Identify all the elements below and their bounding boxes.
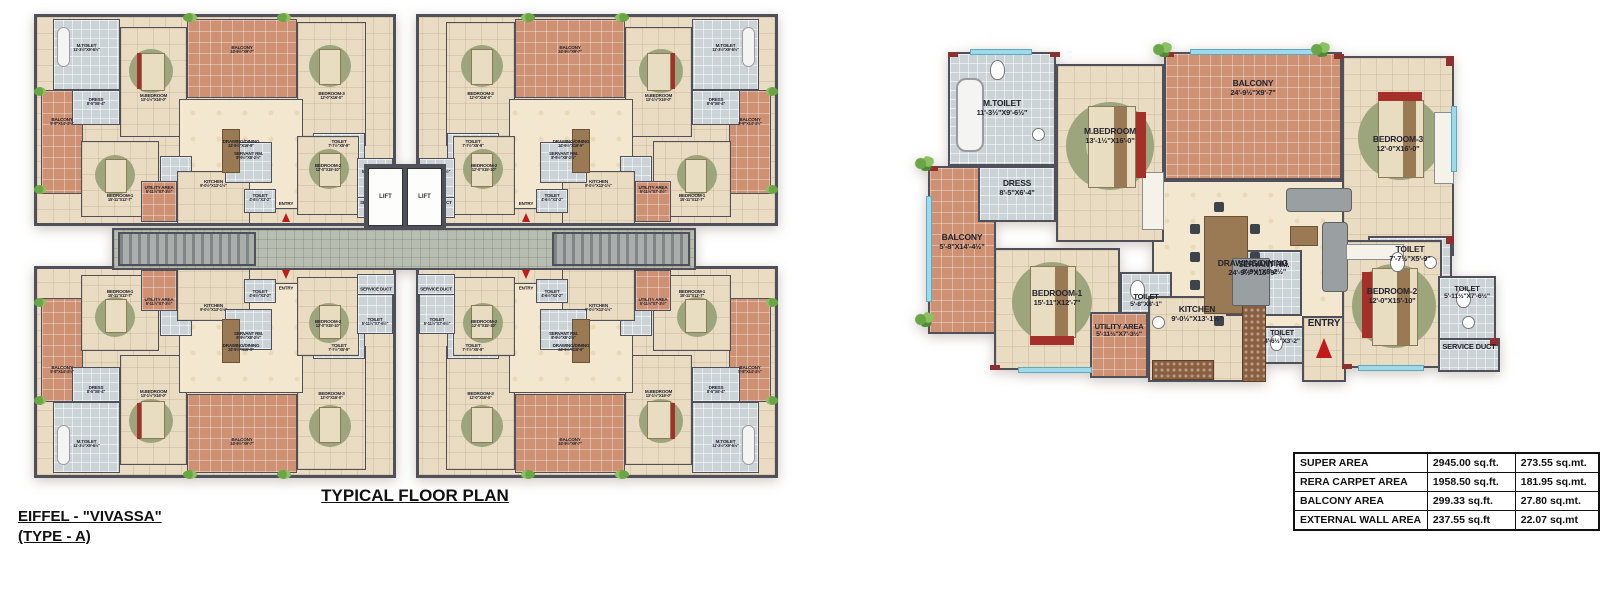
lift-core: LIFT LIFT	[364, 164, 446, 230]
mini-bed-m-bedroom	[141, 53, 165, 91]
label-servant: SERVANT RM.8'-9½"X8'-2½"	[1230, 260, 1298, 278]
project-type: (TYPE - A)	[18, 528, 91, 545]
mini-label-servant: SERVANT RM.8'-9½"X8'-2½"	[540, 331, 587, 341]
room-dims: 5'-8"X14'-4½"	[39, 122, 85, 127]
room-dims: 7'-7½"X5'-9"	[447, 348, 499, 353]
coffee-table	[1290, 226, 1318, 246]
page: LIFT LIFT M.TO	[0, 0, 1600, 600]
room-dims: 24'-9½"X9'-7"	[187, 50, 297, 55]
room-dims: 4'-6½"X3'-2"	[244, 294, 276, 299]
mini-plant-icon	[34, 87, 46, 96]
mini-label-balcony-side: BALCONY5'-8"X14'-4½"	[727, 117, 773, 127]
mini-label-balcony-side: BALCONY5'-8"X14'-4½"	[727, 365, 773, 375]
mini-balcony-top	[187, 394, 297, 473]
mini-label-m-bedroom: M.BEDROOM13'-1½"X16'-0"	[120, 93, 187, 103]
room-dims: 12'-0"X15'-10"	[297, 324, 359, 329]
mini-label-toilet-right: TOILET7'-7½"X5'-9"	[447, 343, 499, 353]
toilet-wc	[990, 60, 1005, 80]
room-name: ENTRY	[1300, 318, 1348, 330]
room-dims: 13'-1½"X16'-0"	[120, 394, 187, 399]
sofa-right	[1322, 222, 1348, 292]
room-dims: 8'-9½"X8'-2½"	[540, 336, 587, 341]
mini-label-bedroom-2: BEDROOM-212'-0"X15'-10"	[453, 163, 515, 173]
wall-accent	[1342, 364, 1352, 369]
room-name: TOILET	[1376, 244, 1444, 254]
mini-label-toilet-entry: TOILET4'-6½"X3'-2"	[536, 289, 568, 299]
label-toilet-b2: TOILET5'-11½"X7'-6½"	[1440, 284, 1494, 301]
mini-label-balcony-top: BALCONY24'-9½"X9'-7"	[187, 437, 297, 447]
room-dims: 4'-6½"X3'-2"	[536, 294, 568, 299]
room-dims: 12'-0"X16'-0"	[446, 396, 515, 401]
room-dims: 13'-1½"X16'-0"	[120, 98, 187, 103]
label-entry: ENTRY	[1300, 318, 1348, 330]
mini-sofa-accent	[671, 53, 675, 89]
mini-label-bedroom-3: BEDROOM-312'-0"X16'-0"	[446, 91, 515, 101]
dining-chair	[1190, 224, 1200, 234]
room-name: BALCONY	[930, 232, 994, 242]
mini-label-m-toilet: M.TOILET11'-3½"X9'-6½"	[53, 439, 120, 449]
mini-label-kitchen: KITCHEN9'-0½"X13'-1½"	[562, 303, 635, 313]
mini-label-toilet-right: TOILET7'-7½"X5'-9"	[447, 139, 499, 149]
area-label: SUPER AREA	[1294, 453, 1427, 473]
mini-label-kitchen: KITCHEN9'-0½"X13'-1½"	[177, 179, 250, 189]
table-row: RERA CARPET AREA 1958.50 sq.ft. 181.95 s…	[1294, 473, 1599, 492]
mini-plant-icon	[183, 13, 197, 22]
mini-balcony-top	[515, 394, 625, 473]
room-name: TOILET	[1440, 284, 1494, 293]
room-dims: 7'-7½"X5'-9"	[313, 144, 365, 149]
label-toilet-right: TOILET7'-7½"X5'-9"	[1376, 244, 1444, 263]
mini-entry-arrow-icon	[282, 213, 290, 222]
mini-toilet-b2	[419, 294, 455, 334]
entry-arrow-icon	[1316, 338, 1332, 358]
unit-plan-panel: M.TOILET11'-3½"X9'-6½" DRESS8'-5"X6'-4" …	[800, 0, 1600, 600]
room-dims: 4'-6½"X3'-2"	[536, 198, 568, 203]
plant-icon	[1310, 42, 1332, 57]
room-dims: 9'-0½"X13'-1½"	[177, 184, 250, 189]
project-name: EIFFEL - "VIVASSA"	[18, 508, 162, 525]
mini-label-toilet-right: TOILET7'-7½"X5'-9"	[313, 139, 365, 149]
mini-label-drawing-dining: DRAWING/DINING24'-9½"X16'-9"	[509, 139, 633, 149]
mini-entry-arrow-icon	[522, 213, 530, 222]
mini-label-kitchen: KITCHEN9'-0½"X13'-1½"	[177, 303, 250, 313]
window	[1358, 365, 1424, 371]
wall-accent	[1446, 56, 1454, 66]
mini-bed-m-bedroom	[647, 401, 671, 439]
area-table: SUPER AREA 2945.00 sq.ft. 273.55 sq.mt. …	[1293, 452, 1600, 531]
mini-plant-icon	[521, 13, 535, 22]
room-dims: 9'-0½"X13'-1½"	[562, 308, 635, 313]
mini-dining-table	[572, 319, 590, 363]
room-dims: 4'-6½"X3'-2"	[1258, 338, 1306, 346]
mini-bed-bedroom-1	[105, 159, 127, 193]
mini-label-utility: UTILITY AREA5'-11½"X7'-3½"	[635, 297, 671, 307]
toilet-basin	[1462, 316, 1475, 329]
label-bedroom-2: BEDROOM-212'-0"X15'-10"	[1350, 286, 1434, 305]
window	[1018, 367, 1092, 373]
area-sqft: 237.55 sq.ft	[1427, 511, 1515, 531]
floorplan-unit-top-left: M.TOILET11'-3½"X9'-6½" DRESS8'-5"X6'-4" …	[34, 14, 396, 226]
mini-plant-icon	[34, 396, 46, 405]
mini-label-m-toilet: M.TOILET11'-3½"X9'-6½"	[692, 439, 759, 449]
mini-balcony-top	[515, 19, 625, 98]
table-row: SUPER AREA 2945.00 sq.ft. 273.55 sq.mt.	[1294, 453, 1599, 473]
room-dims: 11'-3½"X9'-6½"	[53, 48, 120, 53]
room-balcony-top	[1164, 52, 1342, 180]
room-dims: 5'-8"X14'-4½"	[727, 370, 773, 375]
mini-label-dress: DRESS8'-5"X6'-4"	[692, 97, 740, 107]
dining-chair	[1214, 202, 1224, 212]
room-name: SERVICE DUCT	[417, 287, 455, 292]
area-label: EXTERNAL WALL AREA	[1294, 511, 1427, 531]
area-sqmt: 181.95 sq.mt.	[1515, 473, 1599, 492]
room-dims: 9'-0½"X13'-1½"	[1152, 314, 1242, 323]
room-dims: 8'-9½"X8'-2½"	[540, 156, 587, 161]
mini-bed-bedroom-1	[685, 159, 707, 193]
room-dims: 24'-9½"X16'-9"	[179, 144, 303, 149]
mini-label-utility: UTILITY AREA5'-11½"X7'-3½"	[141, 185, 177, 195]
mini-plant-icon	[34, 185, 46, 194]
mini-plant-icon	[277, 470, 291, 479]
room-dims: 24'-9½"X9'-7"	[1190, 88, 1316, 97]
wardrobe	[1142, 172, 1164, 230]
room-name: ENTRY	[513, 201, 539, 206]
dining-chair	[1250, 224, 1260, 234]
wall-accent	[948, 52, 958, 57]
room-dims: 24'-9½"X9'-7"	[515, 50, 625, 55]
room-dims: 8'-9½"X8'-2½"	[225, 336, 272, 341]
mini-plant-icon	[766, 185, 778, 194]
area-sqft: 2945.00 sq.ft.	[1427, 453, 1515, 473]
room-dims: 4'-6½"X3'-2"	[244, 198, 276, 203]
room-dims: 24'-9½"X16'-9"	[509, 144, 633, 149]
room-name: TOILET	[1122, 292, 1170, 301]
room-dims: 24'-9½"X16'-9"	[509, 348, 633, 353]
window	[970, 49, 1032, 55]
room-dims: 15'-11"X12'-7"	[653, 198, 731, 203]
mini-label-toilet-b2: TOILET5'-11½"X7'-6½"	[357, 317, 393, 327]
mini-bed-bedroom-1	[105, 299, 127, 333]
mini-plant-icon	[183, 470, 197, 479]
wall-accent	[1050, 52, 1060, 57]
room-name: KITCHEN	[1152, 304, 1242, 314]
room-name: ENTRY	[513, 286, 539, 291]
room-dims: 12'-0"X16'-0"	[446, 96, 515, 101]
mini-sofa-accent	[137, 53, 141, 89]
lift-1: LIFT	[368, 168, 403, 226]
mini-dining-table	[222, 319, 240, 363]
plant-icon	[914, 156, 936, 171]
mini-bed-bedroom-3	[471, 49, 493, 85]
area-sqft: 299.33 sq.ft.	[1427, 492, 1515, 511]
label-dress: DRESS8'-5"X6'-4"	[982, 178, 1052, 197]
room-dims: 5'-8"X14'-4½"	[930, 242, 994, 251]
label-bedroom-1: BEDROOM-115'-11"X12'-7"	[1006, 288, 1108, 307]
label-service-duct: SERVICE DUCT	[1440, 342, 1498, 351]
room-dims: 8'-5"X6'-4"	[982, 188, 1052, 197]
staircase-left	[118, 232, 256, 266]
lift-2: LIFT	[407, 168, 442, 226]
room-dims: 11'-3½"X9'-6½"	[956, 108, 1048, 117]
room-name: BALCONY	[1190, 78, 1316, 88]
mini-entry-arrow-icon	[282, 270, 290, 279]
mini-bed-m-bedroom	[647, 53, 671, 91]
mini-label-balcony-side: BALCONY5'-8"X14'-4½"	[39, 117, 85, 127]
mini-plant-icon	[615, 13, 629, 22]
room-name: ENTRY	[273, 286, 299, 291]
room-dims: 5'-8"X14'-4½"	[39, 370, 85, 375]
room-dims: 5'-11½"X7'-3½"	[1092, 331, 1146, 339]
mini-plant-icon	[766, 298, 778, 307]
room-name: DRESS	[982, 178, 1052, 188]
label-balcony-side: BALCONY5'-8"X14'-4½"	[930, 232, 994, 251]
sofa-bedroom-1	[1030, 336, 1074, 345]
room-name: BEDROOM-2	[1350, 286, 1434, 296]
mini-label-balcony-top: BALCONY24'-9½"X9'-7"	[187, 45, 297, 55]
window	[1190, 49, 1322, 55]
label-balcony-top: BALCONY24'-9½"X9'-7"	[1190, 78, 1316, 97]
lift-label: LIFT	[379, 194, 392, 200]
room-dims: 7'-7½"X5'-9"	[447, 144, 499, 149]
mini-label-toilet-right: TOILET7'-7½"X5'-9"	[313, 343, 365, 353]
mini-label-entry: ENTRY	[513, 286, 539, 291]
room-dims: 15'-11"X12'-7"	[81, 198, 159, 203]
room-dims: 12'-0"X15'-10"	[297, 168, 359, 173]
mini-toilet-b2	[357, 294, 393, 334]
bed-m-bedroom	[1088, 106, 1136, 188]
floorplan-unit-top-right: M.TOILET11'-3½"X9'-6½" DRESS8'-5"X6'-4" …	[416, 14, 778, 226]
floorplan-unit-bottom-right: M.TOILET11'-3½"X9'-6½" DRESS8'-5"X6'-4" …	[416, 266, 778, 478]
mini-label-bedroom-3: BEDROOM-312'-0"X16'-0"	[297, 91, 366, 101]
staircase-right	[552, 232, 690, 266]
room-dims: 5'-11½"X7'-6½"	[357, 322, 393, 327]
mini-label-balcony-top: BALCONY24'-9½"X9'-7"	[515, 437, 625, 447]
room-name: ENTRY	[273, 201, 299, 206]
mini-bed-bedroom-3	[319, 49, 341, 85]
room-dims: 5'-11½"X7'-6½"	[1440, 293, 1494, 301]
mini-label-balcony-side: BALCONY5'-8"X14'-4½"	[39, 365, 85, 375]
mini-label-drawing-dining: DRAWING/DINING24'-9½"X16'-9"	[509, 343, 633, 353]
mini-plant-icon	[766, 87, 778, 96]
room-dims: 5'-11½"X7'-3½"	[141, 190, 177, 195]
room-dims: 5'-11½"X7'-3½"	[635, 190, 671, 195]
kitchen-counter-2	[1152, 360, 1214, 380]
mini-bed-bedroom-3	[319, 407, 341, 443]
mini-label-utility: UTILITY AREA5'-11½"X7'-3½"	[141, 297, 177, 307]
mini-bed-m-bedroom	[141, 401, 165, 439]
toilet-basin	[1032, 128, 1045, 141]
label-utility: UTILITY AREA5'-11½"X7'-3½"	[1092, 322, 1146, 339]
mini-label-dress: DRESS8'-5"X6'-4"	[72, 385, 120, 395]
room-dims: 15'-11"X12'-7"	[1006, 298, 1108, 307]
room-dims: 12'-0"X16'-0"	[1352, 144, 1444, 153]
plant-icon	[1152, 42, 1174, 57]
room-dims: 12'-0"X15'-10"	[453, 168, 515, 173]
mini-label-bedroom-2: BEDROOM-212'-0"X15'-10"	[297, 163, 359, 173]
mini-balcony-top	[187, 19, 297, 98]
room-dims: 24'-9½"X9'-7"	[187, 442, 297, 447]
room-dims: 9'-0½"X13'-1½"	[177, 308, 250, 313]
label-m-bedroom: M.BEDROOM13'-1½"X16'-0"	[1066, 126, 1154, 145]
bed-bedroom-2	[1372, 268, 1418, 346]
mini-label-m-bedroom: M.BEDROOM13'-1½"X16'-0"	[625, 93, 692, 103]
bed-runner	[1114, 107, 1127, 187]
sofa-bedroom-3	[1378, 92, 1422, 101]
mini-plant-icon	[615, 470, 629, 479]
room-dims: 5'-11½"X7'-3½"	[141, 302, 177, 307]
room-dims: 11'-3½"X9'-6½"	[53, 444, 120, 449]
mini-label-utility: UTILITY AREA5'-11½"X7'-3½"	[635, 185, 671, 195]
mini-plant-icon	[34, 298, 46, 307]
plant-icon	[914, 312, 936, 327]
room-dims: 8'-9½"X8'-2½"	[225, 156, 272, 161]
room-dims: 24'-9½"X16'-9"	[179, 348, 303, 353]
dining-chair	[1190, 280, 1200, 290]
mini-sofa-accent	[671, 403, 675, 439]
mini-label-service-duct: SERVICE DUCT	[357, 287, 395, 292]
mini-label-dress: DRESS8'-5"X6'-4"	[72, 97, 120, 107]
area-label: BALCONY AREA	[1294, 492, 1427, 511]
room-dims: 8'-5"X6'-4"	[72, 390, 120, 395]
mini-sofa-accent	[137, 403, 141, 439]
wall-accent	[990, 365, 1000, 370]
room-name: SERVANT RM.	[1230, 260, 1298, 269]
mini-label-service-duct: SERVICE DUCT	[417, 287, 455, 292]
mini-label-toilet-entry: TOILET4'-6½"X3'-2"	[244, 289, 276, 299]
mini-bed-bedroom-1	[685, 299, 707, 333]
room-dims: 8'-5"X6'-4"	[692, 390, 740, 395]
floor-plan-canvas: LIFT LIFT M.TO	[12, 6, 800, 484]
mini-bed-bedroom-3	[471, 407, 493, 443]
mini-label-m-toilet: M.TOILET11'-3½"X9'-6½"	[53, 43, 120, 53]
lift-label: LIFT	[418, 194, 431, 200]
unit-plan-canvas: M.TOILET11'-3½"X9'-6½" DRESS8'-5"X6'-4" …	[890, 16, 1540, 392]
label-kitchen: KITCHEN9'-0½"X13'-1½"	[1152, 304, 1242, 323]
area-sqmt: 27.80 sq.mt.	[1515, 492, 1599, 511]
mini-label-drawing-dining: DRAWING/DINING24'-9½"X16'-9"	[179, 343, 303, 353]
label-toilet-entry: TOILET4'-6½"X3'-2"	[1258, 330, 1306, 346]
area-label: RERA CARPET AREA	[1294, 473, 1427, 492]
mini-label-toilet-entry: TOILET4'-6½"X3'-2"	[244, 193, 276, 203]
mini-label-dress: DRESS8'-5"X6'-4"	[692, 385, 740, 395]
table-row: BALCONY AREA 299.33 sq.ft. 27.80 sq.mt.	[1294, 492, 1599, 511]
mini-label-bedroom-3: BEDROOM-312'-0"X16'-0"	[297, 391, 366, 401]
floor-plan-title: TYPICAL FLOOR PLAN	[260, 486, 570, 506]
mini-label-toilet-b2: TOILET5'-11½"X7'-6½"	[419, 317, 455, 327]
mini-label-entry: ENTRY	[513, 201, 539, 206]
room-dims: 11'-3½"X9'-6½"	[692, 48, 759, 53]
room-dims: 24'-9½"X9'-7"	[515, 442, 625, 447]
room-name: BEDROOM-1	[1006, 288, 1108, 298]
room-dims: 5'-11½"X7'-3½"	[635, 302, 671, 307]
room-name: UTILITY AREA	[1092, 322, 1146, 331]
room-dims: 9'-0½"X13'-1½"	[562, 184, 635, 189]
wall-accent	[1446, 236, 1454, 244]
mini-label-m-bedroom: M.BEDROOM13'-1½"X16'-0"	[120, 389, 187, 399]
bed-runner	[1397, 269, 1409, 345]
window	[1451, 106, 1457, 172]
room-dims: 13'-1½"X16'-0"	[625, 98, 692, 103]
area-sqmt: 22.07 sq.mt	[1515, 511, 1599, 531]
sofa-top	[1286, 188, 1352, 212]
room-name: SERVICE DUCT	[1440, 342, 1498, 351]
mini-label-bedroom-2: BEDROOM-212'-0"X15'-10"	[453, 319, 515, 329]
room-dims: 5'-11½"X7'-6½"	[419, 322, 455, 327]
room-dims: 13'-1½"X16'-0"	[625, 394, 692, 399]
mini-label-bedroom-3: BEDROOM-312'-0"X16'-0"	[446, 391, 515, 401]
room-dims: 8'-9½"X8'-2½"	[1230, 269, 1298, 277]
mini-plant-icon	[521, 470, 535, 479]
mini-label-balcony-top: BALCONY24'-9½"X9'-7"	[515, 45, 625, 55]
room-dims: 8'-5"X6'-4"	[692, 102, 740, 107]
room-name: M.BEDROOM	[1066, 126, 1154, 136]
mini-label-servant: SERVANT RM.8'-9½"X8'-2½"	[225, 331, 272, 341]
room-dims: 11'-3½"X9'-6½"	[692, 444, 759, 449]
mini-plant-icon	[277, 13, 291, 22]
room-name: SERVICE DUCT	[357, 287, 395, 292]
floorplan-unit-bottom-left: M.TOILET11'-3½"X9'-6½" DRESS8'-5"X6'-4" …	[34, 266, 396, 478]
mini-label-drawing-dining: DRAWING/DINING24'-9½"X16'-9"	[179, 139, 303, 149]
area-sqft: 1958.50 sq.ft.	[1427, 473, 1515, 492]
room-dims: 12'-0"X16'-0"	[297, 96, 366, 101]
mini-label-entry: ENTRY	[273, 201, 299, 206]
room-dims: 5'-8"X14'-4½"	[727, 122, 773, 127]
mini-label-m-toilet: M.TOILET11'-3½"X9'-6½"	[692, 43, 759, 53]
room-dims: 7'-7½"X5'-9"	[313, 348, 365, 353]
room-dims: 12'-0"X16'-0"	[297, 396, 366, 401]
label-m-toilet: M.TOILET11'-3½"X9'-6½"	[956, 98, 1048, 117]
mini-label-entry: ENTRY	[273, 286, 299, 291]
room-name: BEDROOM-3	[1352, 134, 1444, 144]
room-dims: 8'-5"X6'-4"	[72, 102, 120, 107]
table-row: EXTERNAL WALL AREA 237.55 sq.ft 22.07 sq…	[1294, 511, 1599, 531]
room-dims: 13'-1½"X16'-0"	[1066, 136, 1154, 145]
mini-label-toilet-entry: TOILET4'-6½"X3'-2"	[536, 193, 568, 203]
mini-label-servant: SERVANT RM.8'-9½"X8'-2½"	[540, 151, 587, 161]
mini-label-m-bedroom: M.BEDROOM13'-1½"X16'-0"	[625, 389, 692, 399]
mini-plant-icon	[766, 396, 778, 405]
room-dims: 12'-0"X15'-10"	[453, 324, 515, 329]
typical-floor-plan-panel: LIFT LIFT M.TO	[0, 0, 800, 600]
mini-entry-arrow-icon	[522, 270, 530, 279]
mini-label-bedroom-2: BEDROOM-212'-0"X15'-10"	[297, 319, 359, 329]
room-name: M.TOILET	[956, 98, 1048, 108]
mini-label-servant: SERVANT RM.8'-9½"X8'-2½"	[225, 151, 272, 161]
area-sqmt: 273.55 sq.mt.	[1515, 453, 1599, 473]
room-dims: 7'-7½"X5'-9"	[1376, 254, 1444, 263]
mini-label-kitchen: KITCHEN9'-0½"X13'-1½"	[562, 179, 635, 189]
label-bedroom-3: BEDROOM-312'-0"X16'-0"	[1352, 134, 1444, 153]
wall-accent	[1334, 54, 1344, 59]
room-dims: 12'-0"X15'-10"	[1350, 296, 1434, 305]
